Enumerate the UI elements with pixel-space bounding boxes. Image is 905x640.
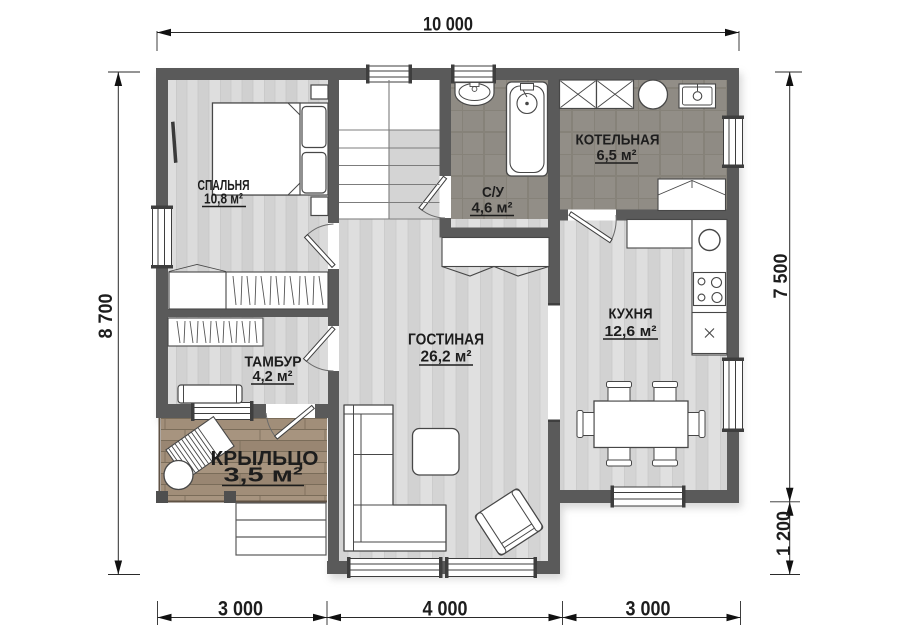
svg-text:3,5 м²: 3,5 м² bbox=[224, 465, 303, 487]
svg-text:6,5 м²: 6,5 м² bbox=[597, 147, 637, 164]
svg-text:7 500: 7 500 bbox=[771, 254, 792, 299]
svg-text:4,6 м²: 4,6 м² bbox=[472, 200, 513, 217]
svg-text:ГОСТИНАЯ: ГОСТИНАЯ bbox=[408, 332, 484, 349]
svg-text:8 700: 8 700 bbox=[96, 294, 117, 339]
svg-text:26,2 м²: 26,2 м² bbox=[421, 349, 472, 366]
svg-text:1 200: 1 200 bbox=[774, 511, 795, 556]
svg-text:С/У: С/У bbox=[482, 184, 505, 201]
svg-text:4,2 м²: 4,2 м² bbox=[253, 368, 293, 385]
svg-text:4 000: 4 000 bbox=[423, 598, 468, 621]
svg-text:КОТЕЛЬНАЯ: КОТЕЛЬНАЯ bbox=[576, 132, 660, 149]
svg-text:3 000: 3 000 bbox=[218, 598, 263, 621]
svg-text:12,6 м²: 12,6 м² bbox=[605, 323, 657, 340]
svg-text:КУХНЯ: КУХНЯ bbox=[609, 306, 653, 323]
svg-text:3 000: 3 000 bbox=[626, 598, 671, 621]
svg-text:10,8 м²: 10,8 м² bbox=[204, 191, 243, 208]
svg-text:10 000: 10 000 bbox=[423, 15, 473, 36]
